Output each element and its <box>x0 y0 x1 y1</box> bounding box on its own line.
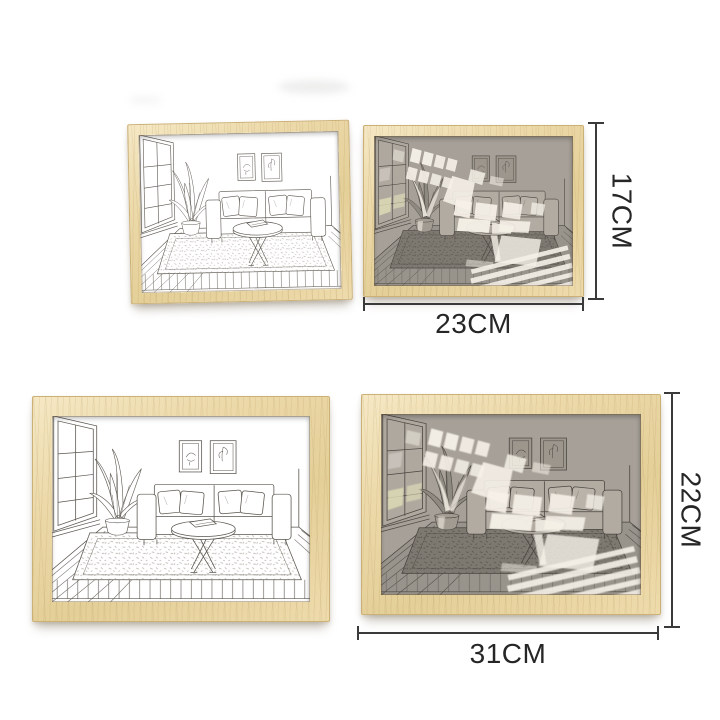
product-photo-stage: 17CM 23CM 22CM 31CM <box>0 0 720 720</box>
artwork-panel <box>138 131 341 293</box>
dimension-label-height-small: 17CM <box>592 122 650 300</box>
dimension-label-width-small: 23CM <box>363 308 584 340</box>
frame-large-backlit <box>361 394 661 615</box>
dimension-line-width-large <box>357 632 659 634</box>
lineart-livingroom-scene <box>138 131 341 293</box>
artwork-panel <box>52 416 310 602</box>
frame-large-lineart <box>32 396 330 622</box>
lineart-livingroom-scene <box>52 416 310 602</box>
photo-smudge <box>128 96 162 104</box>
dimension-label-height-large: 22CM <box>662 392 718 628</box>
dimension-line-width-small <box>363 303 584 305</box>
backlit-livingroom-scene <box>374 136 573 286</box>
artwork-panel <box>381 414 641 595</box>
artwork-panel <box>374 136 573 286</box>
frame-small-backlit <box>363 125 584 297</box>
photo-smudge <box>278 80 350 94</box>
backlit-livingroom-scene <box>381 414 641 595</box>
frame-small-lineart <box>127 120 353 305</box>
dimension-label-width-large: 31CM <box>357 638 659 670</box>
